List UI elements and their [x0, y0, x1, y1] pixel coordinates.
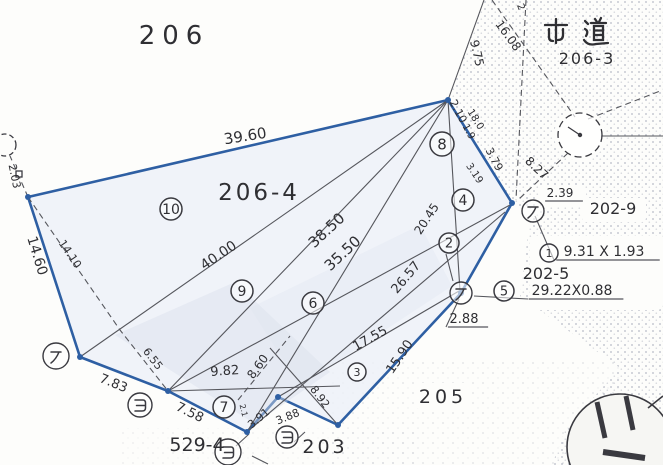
point-number: 1: [546, 247, 553, 260]
yo-marker-icon: [128, 393, 152, 417]
point-number: 10: [162, 202, 180, 218]
station-marker-icon: [558, 113, 602, 157]
note-label: 9.31 X 1.93: [564, 244, 645, 260]
note-label: 29.22X0.88: [532, 283, 613, 299]
stub-circle: [0, 134, 16, 156]
marker-circle: [43, 343, 69, 369]
slash-marker-icon: [522, 200, 544, 222]
parcel-label: 206: [139, 21, 210, 51]
parcel-label: 202-9: [590, 199, 637, 218]
point-number: 7: [220, 400, 229, 416]
marker-circle: [450, 282, 472, 304]
parcel-label: 203: [302, 436, 347, 458]
yo-marker-icon: [276, 426, 298, 448]
point-number: 9: [238, 284, 247, 300]
point-number: 6: [309, 296, 318, 312]
dim-label: 2.39: [547, 186, 574, 200]
parcel-label: 202-5: [523, 264, 570, 283]
sparse-stipple-bottom-strip: [120, 428, 420, 465]
slash-marker-icon: [43, 343, 69, 369]
point-number: 3: [354, 366, 361, 379]
point-number: 2: [445, 237, 453, 252]
dim-label: 9.82: [210, 363, 240, 380]
point-number: 5: [500, 285, 508, 300]
dim-label: 3.88: [274, 406, 302, 427]
parcel-label: 529-4: [169, 434, 224, 456]
point-number: 8: [437, 135, 447, 153]
point-number: 4: [459, 193, 468, 209]
stub-marker-icon: [0, 134, 16, 156]
slash-marker-icon: [450, 282, 472, 304]
parcel-label: 205: [419, 386, 467, 408]
marker-circle: [522, 200, 544, 222]
dim-label: 2.03: [6, 163, 24, 190]
cadastral-map: 10968423715 206206-4206-3202-9202-520520…: [0, 0, 663, 465]
scanned-cadastral-map-page: 10968423715 206206-4206-3202-9202-520520…: [0, 0, 663, 465]
dim-label: 2.88: [450, 312, 479, 327]
parcel-label: 206-4: [218, 180, 300, 206]
parcel-label: 206-3: [559, 49, 616, 68]
